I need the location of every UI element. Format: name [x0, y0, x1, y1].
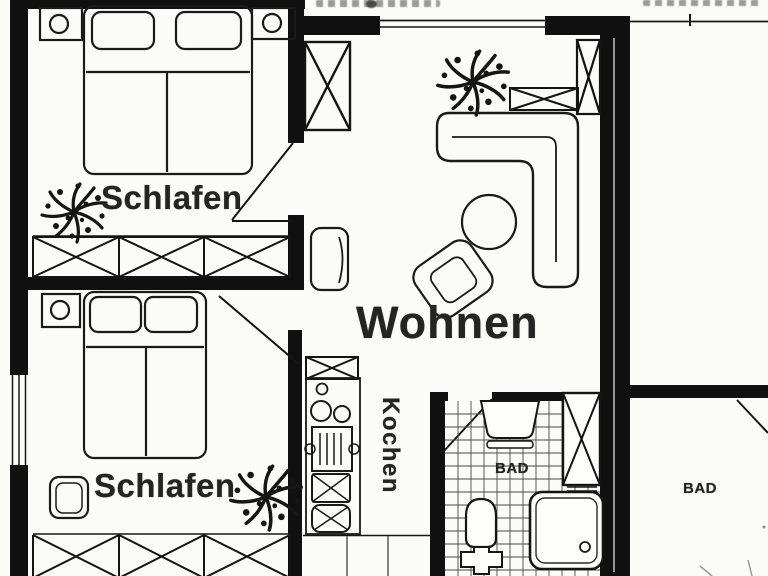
wall-bedroom2-top — [10, 277, 304, 290]
hatch-strip-bottom — [33, 535, 290, 576]
room-label-kitchen: Kochen — [378, 397, 402, 494]
cropped-text-fragment — [366, 0, 377, 8]
kitchen-appliance-icon — [312, 505, 350, 532]
cropped-drawing-artifact — [700, 526, 766, 576]
sink-bowl-icon — [311, 401, 331, 421]
wall-party-right — [600, 16, 630, 576]
cropped-text-fragment — [643, 0, 761, 6]
wall-bath-top — [492, 392, 568, 401]
washbasin-icon — [481, 401, 539, 448]
double-bed-icon — [84, 6, 252, 174]
sink-bowl-icon — [334, 406, 350, 422]
double-bed-icon — [84, 292, 206, 458]
room-label-bath-center: BAD — [495, 461, 529, 476]
stove-icon — [305, 427, 359, 471]
room-label-bedroom-top: Schlafen — [101, 181, 243, 214]
wall-bath-top-stub — [430, 392, 448, 401]
wall-living-top-left — [290, 16, 380, 35]
shower-icon — [530, 492, 603, 569]
floor-plan: Schlafen Schlafen Wohnen Kochen BAD BAD — [0, 0, 768, 576]
stool-icon — [50, 477, 88, 518]
nightstand-icon — [40, 8, 82, 40]
sink-tap-icon — [317, 384, 328, 395]
kitchen-sink-unit-icon — [312, 474, 350, 502]
kitchen-units — [305, 378, 360, 534]
wall-bath-left — [430, 392, 445, 576]
wall-left-lower — [10, 465, 28, 576]
cropped-text-fragment — [316, 0, 440, 7]
lamp-icon — [263, 14, 281, 32]
room-label-living: Wohnen — [356, 300, 539, 345]
wall-bath-right-top — [630, 385, 768, 398]
wardrobe-icon — [305, 42, 350, 130]
armchair-icon — [311, 228, 348, 290]
bedroom-top-furniture — [40, 6, 295, 174]
lamp-icon — [51, 301, 69, 319]
plant-icon — [42, 183, 106, 242]
plant-icon — [438, 51, 508, 115]
room-label-bedroom-bottom: Schlafen — [94, 469, 236, 502]
lamp-icon — [50, 15, 68, 33]
living-room-furniture — [311, 113, 578, 323]
toilet-icon — [461, 499, 502, 574]
wardrobe-icon — [577, 40, 600, 114]
nightstand-icon — [42, 294, 80, 327]
bathroom-center-fixtures — [461, 393, 603, 574]
wall-left-upper — [10, 0, 28, 375]
hatch-strip-top — [33, 237, 290, 277]
kitchen-upper-cabinet-icon — [306, 357, 358, 379]
room-label-bath-right: BAD — [683, 481, 717, 496]
shaft-icon — [563, 393, 600, 485]
sideboard-icon — [510, 88, 578, 110]
coffee-table-icon — [462, 195, 516, 249]
